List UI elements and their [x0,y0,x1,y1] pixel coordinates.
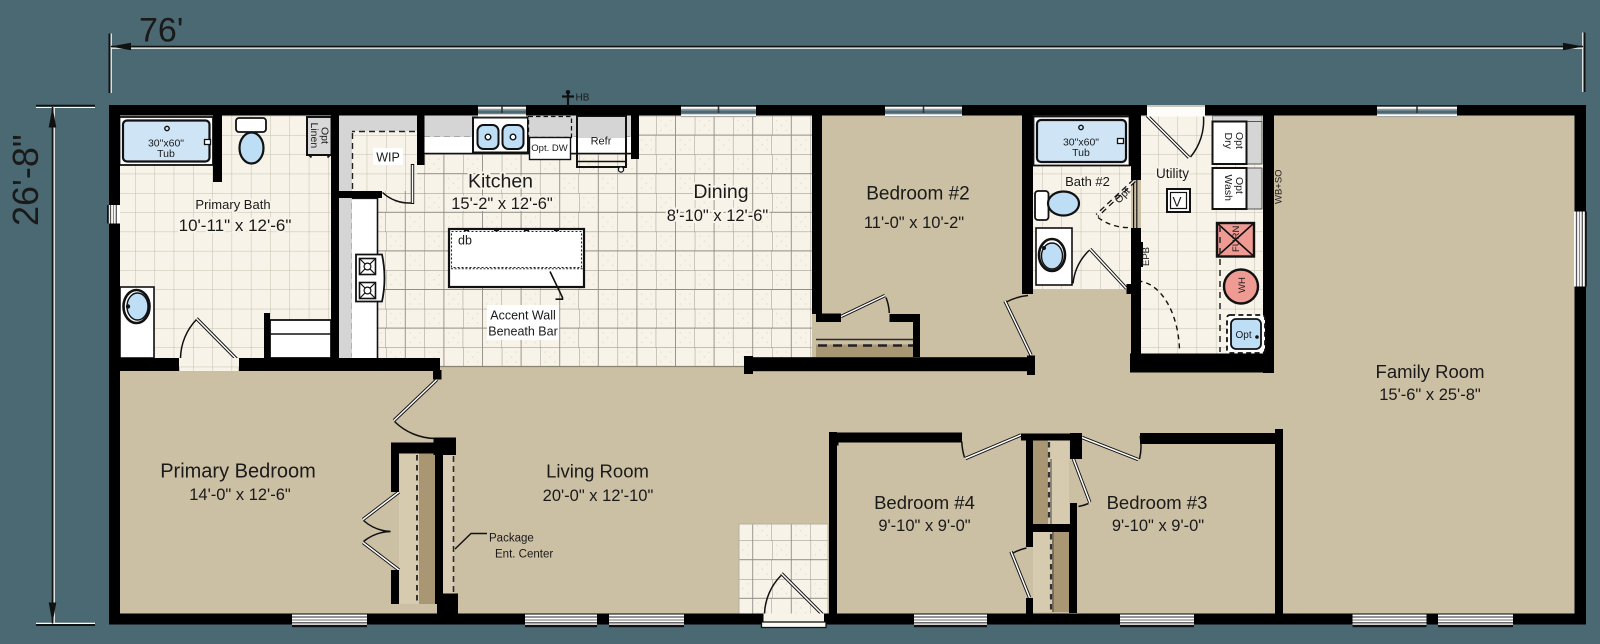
svg-text:Primary Bath: Primary Bath [195,197,270,212]
svg-text:Bedroom #2: Bedroom #2 [866,184,970,205]
svg-text:Tub: Tub [1072,147,1090,159]
svg-text:20'-0" x 12'-10": 20'-0" x 12'-10" [543,487,654,505]
svg-text:WB+SO: WB+SO [1274,169,1285,204]
svg-text:15'-6" x 25'-8": 15'-6" x 25'-8" [1379,386,1481,404]
svg-text:Tub: Tub [157,148,175,160]
svg-text:WIP: WIP [376,151,400,165]
svg-text:Bedroom #4: Bedroom #4 [874,492,975,513]
svg-text:8'-10" x 12'-6": 8'-10" x 12'-6" [667,207,769,225]
svg-text:Kitchen: Kitchen [468,171,533,193]
svg-text:Family Room: Family Room [1376,361,1485,382]
svg-text:Bath #2: Bath #2 [1065,174,1110,189]
svg-text:14'-0" x 12'-6": 14'-0" x 12'-6" [189,486,291,504]
svg-text:9'-10" x 9'-0": 9'-10" x 9'-0" [878,517,970,535]
svg-text:Bedroom #3: Bedroom #3 [1107,492,1208,513]
svg-text:HB: HB [576,93,590,104]
svg-text:Refr: Refr [591,136,612,148]
svg-text:WH: WH [1237,277,1248,293]
svg-text:15'-2" x 12'-6": 15'-2" x 12'-6" [451,195,553,213]
svg-text:Opt. DW: Opt. DW [531,143,567,154]
svg-text:Living Room: Living Room [546,461,649,482]
svg-text:76': 76' [139,12,183,50]
svg-text:Accent Wall: Accent Wall [490,309,556,323]
svg-text:Utility: Utility [1156,166,1189,181]
svg-text:10'-11" x 12'-6": 10'-11" x 12'-6" [179,216,292,235]
svg-text:Opt: Opt [1236,330,1252,341]
svg-text:Ent. Center: Ent. Center [495,549,553,561]
svg-text:11'-0" x 10'-2": 11'-0" x 10'-2" [864,214,964,232]
svg-text:Beneath Bar: Beneath Bar [488,325,558,339]
svg-text:FURN: FURN [1231,225,1242,252]
svg-text:EPB: EPB [1141,247,1152,266]
svg-text:V: V [1173,195,1182,210]
svg-text:db: db [458,234,472,248]
svg-text:Wash: Wash [1222,175,1234,202]
svg-text:Dining: Dining [693,181,748,203]
svg-text:Linen: Linen [308,123,320,149]
svg-text:Primary Bedroom: Primary Bedroom [160,461,316,483]
svg-text:9'-10" x 9'-0": 9'-10" x 9'-0" [1112,517,1204,535]
svg-text:26'-8": 26'-8" [5,134,46,226]
svg-text:Package: Package [489,533,534,545]
svg-text:Dry: Dry [1222,133,1234,150]
